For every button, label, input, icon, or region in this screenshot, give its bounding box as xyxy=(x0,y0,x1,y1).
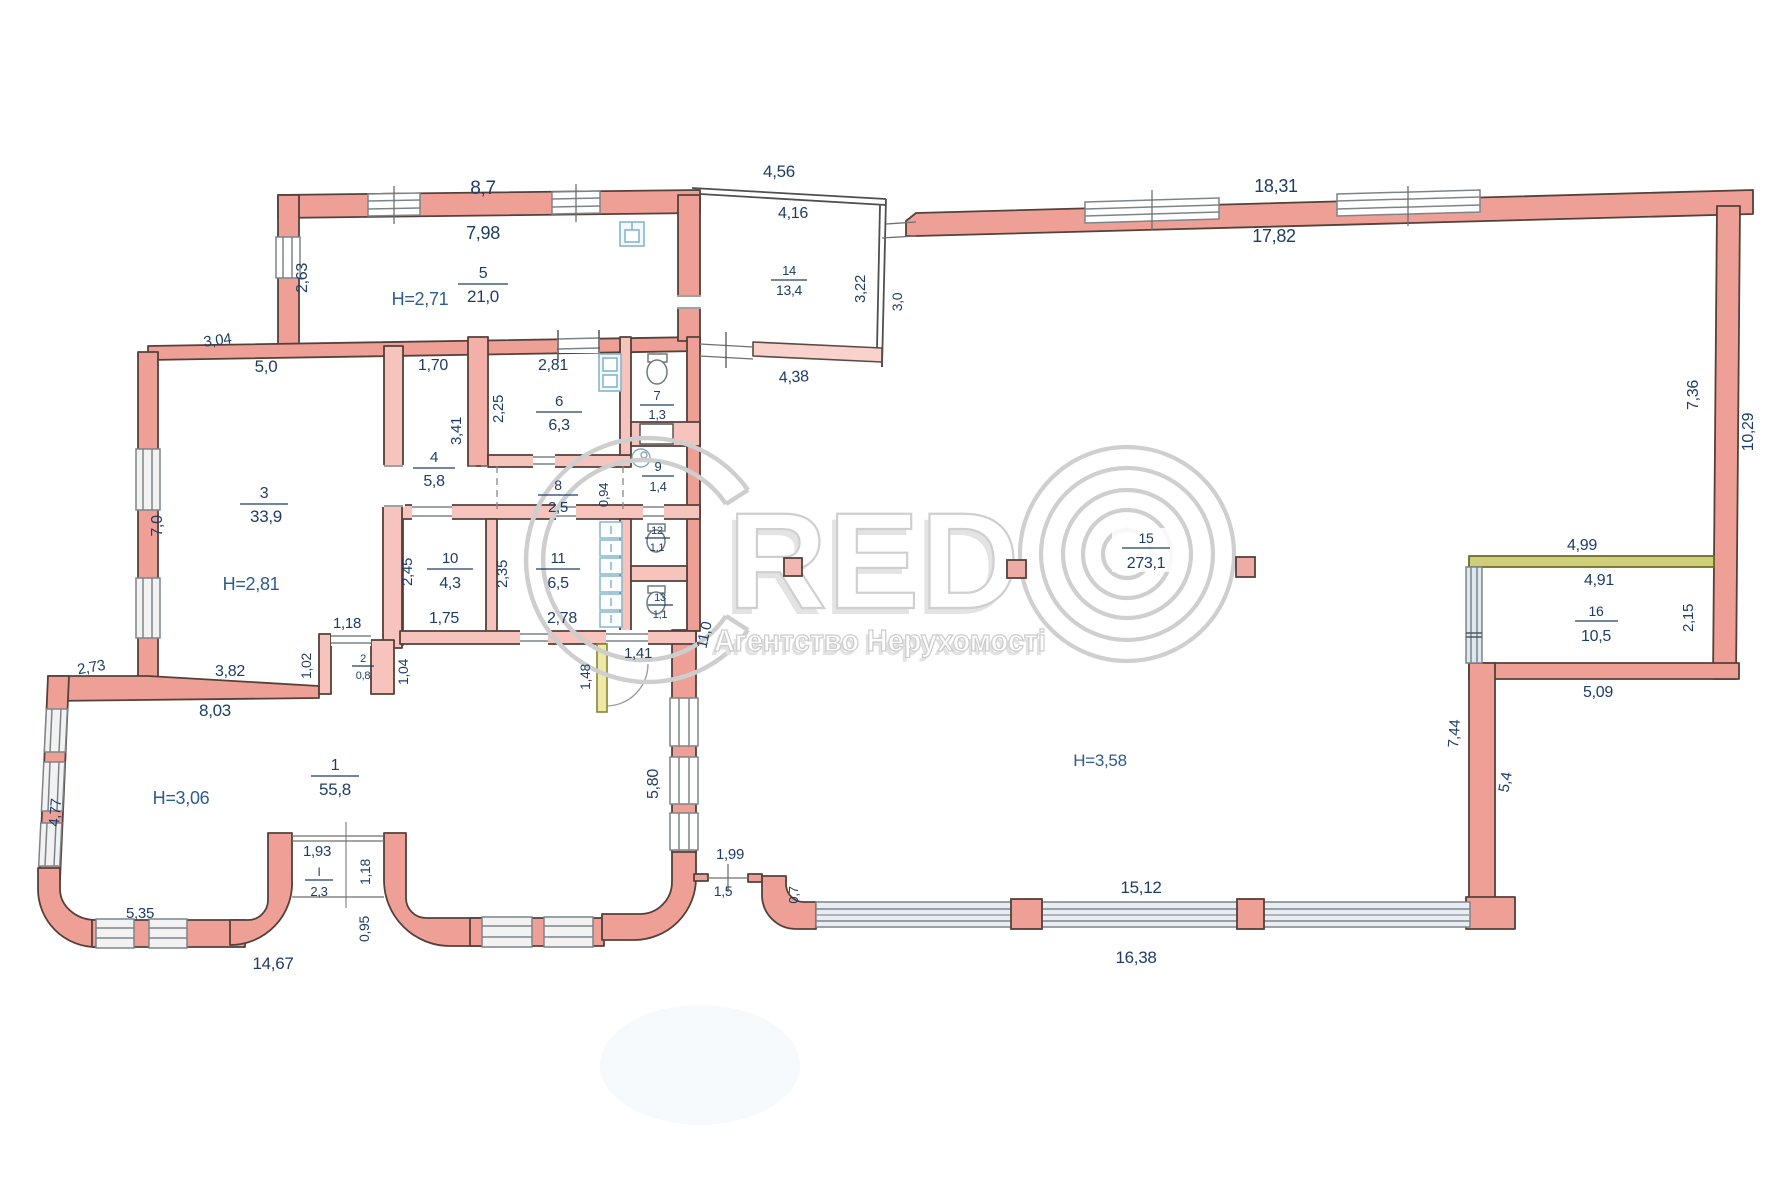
svg-text:1,99: 1,99 xyxy=(716,846,744,863)
svg-text:1,1: 1,1 xyxy=(650,542,665,554)
svg-text:8,03: 8,03 xyxy=(199,701,231,720)
svg-text:RED: RED xyxy=(728,485,1020,638)
svg-text:I: I xyxy=(317,865,320,879)
svg-text:H=3,58: H=3,58 xyxy=(1073,751,1127,770)
svg-text:3,0: 3,0 xyxy=(889,292,905,311)
svg-text:2,15: 2,15 xyxy=(1680,604,1697,632)
svg-text:4,56: 4,56 xyxy=(763,162,795,181)
svg-text:1,48: 1,48 xyxy=(577,663,593,690)
svg-text:7,36: 7,36 xyxy=(1685,380,1702,410)
svg-text:10,29: 10,29 xyxy=(1740,412,1757,451)
svg-text:0,95: 0,95 xyxy=(356,915,372,942)
svg-text:16: 16 xyxy=(1589,603,1604,619)
svg-text:21,0: 21,0 xyxy=(467,287,499,306)
svg-text:13: 13 xyxy=(654,592,666,604)
svg-text:1,75: 1,75 xyxy=(429,610,459,627)
svg-text:H=3,06: H=3,06 xyxy=(153,788,210,808)
svg-text:1,41: 1,41 xyxy=(624,645,652,662)
svg-text:1,1: 1,1 xyxy=(653,609,668,621)
svg-text:0,7: 0,7 xyxy=(786,886,801,903)
svg-text:5,8: 5,8 xyxy=(423,473,445,490)
svg-text:2: 2 xyxy=(360,653,366,665)
svg-text:2,81: 2,81 xyxy=(538,357,568,374)
svg-text:1: 1 xyxy=(331,757,340,774)
svg-text:3,41: 3,41 xyxy=(448,417,465,445)
svg-text:4,91: 4,91 xyxy=(1584,572,1614,589)
svg-text:3: 3 xyxy=(260,485,269,502)
svg-text:15,12: 15,12 xyxy=(1120,878,1161,897)
svg-text:14: 14 xyxy=(782,263,796,278)
svg-text:H=2,81: H=2,81 xyxy=(223,574,280,594)
svg-text:4: 4 xyxy=(430,449,438,466)
svg-text:33,9: 33,9 xyxy=(250,507,282,526)
svg-text:3,22: 3,22 xyxy=(852,275,869,303)
svg-text:16,38: 16,38 xyxy=(1115,948,1156,967)
svg-text:1,4: 1,4 xyxy=(649,479,666,494)
svg-text:18,31: 18,31 xyxy=(1254,176,1298,196)
svg-text:1,18: 1,18 xyxy=(333,615,361,632)
svg-text:5,0: 5,0 xyxy=(255,357,278,376)
svg-text:5,35: 5,35 xyxy=(126,905,154,922)
svg-text:4,99: 4,99 xyxy=(1567,537,1597,554)
svg-text:10,5: 10,5 xyxy=(1581,628,1611,645)
svg-text:6,3: 6,3 xyxy=(548,417,570,434)
svg-text:7,44: 7,44 xyxy=(1445,719,1464,748)
svg-text:4,38: 4,38 xyxy=(778,368,809,387)
svg-text:9: 9 xyxy=(655,459,662,474)
svg-text:7,98: 7,98 xyxy=(466,223,500,243)
svg-text:2,78: 2,78 xyxy=(547,610,577,627)
svg-text:11: 11 xyxy=(551,550,566,567)
svg-text:0,8: 0,8 xyxy=(356,670,371,682)
svg-text:3,04: 3,04 xyxy=(203,330,233,350)
svg-text:7: 7 xyxy=(654,388,661,403)
svg-text:17,82: 17,82 xyxy=(1252,226,1296,246)
svg-text:1,04: 1,04 xyxy=(395,658,411,685)
svg-text:8: 8 xyxy=(554,477,562,493)
svg-text:2,45: 2,45 xyxy=(399,558,416,586)
svg-text:H=2,71: H=2,71 xyxy=(392,289,449,309)
svg-text:1,93: 1,93 xyxy=(303,843,331,860)
svg-text:273,1: 273,1 xyxy=(1127,555,1166,572)
svg-text:7,0: 7,0 xyxy=(149,515,166,537)
svg-text:15: 15 xyxy=(1139,530,1154,546)
svg-text:5,4: 5,4 xyxy=(1495,771,1515,794)
svg-text:1,5: 1,5 xyxy=(714,883,733,899)
svg-text:1,02: 1,02 xyxy=(298,652,314,679)
svg-text:2,5: 2,5 xyxy=(548,499,568,516)
svg-text:6: 6 xyxy=(555,393,563,410)
svg-text:3,82: 3,82 xyxy=(215,663,245,680)
svg-text:55,8: 55,8 xyxy=(319,780,351,799)
svg-text:0,94: 0,94 xyxy=(596,483,611,507)
svg-text:2,25: 2,25 xyxy=(490,395,507,423)
svg-text:Агентство Нерухомості: Агентство Нерухомості xyxy=(714,623,1046,658)
svg-text:1,70: 1,70 xyxy=(418,357,448,374)
svg-text:13,4: 13,4 xyxy=(776,282,803,298)
svg-text:4,3: 4,3 xyxy=(439,575,461,592)
svg-text:1,3: 1,3 xyxy=(648,407,665,422)
svg-text:5,09: 5,09 xyxy=(1583,684,1613,701)
svg-text:4,16: 4,16 xyxy=(778,205,808,222)
svg-text:5: 5 xyxy=(479,265,488,282)
svg-text:12: 12 xyxy=(651,525,663,537)
svg-text:8,7: 8,7 xyxy=(470,178,496,199)
svg-text:2,3: 2,3 xyxy=(310,884,327,899)
svg-text:4,77: 4,77 xyxy=(46,798,65,827)
svg-text:10: 10 xyxy=(442,550,458,567)
svg-text:6,5: 6,5 xyxy=(547,575,569,592)
svg-text:5,80: 5,80 xyxy=(645,769,662,799)
svg-text:2,35: 2,35 xyxy=(494,560,511,588)
svg-text:14,67: 14,67 xyxy=(252,954,293,973)
svg-text:2,63: 2,63 xyxy=(294,263,311,293)
svg-text:1,18: 1,18 xyxy=(357,858,373,885)
